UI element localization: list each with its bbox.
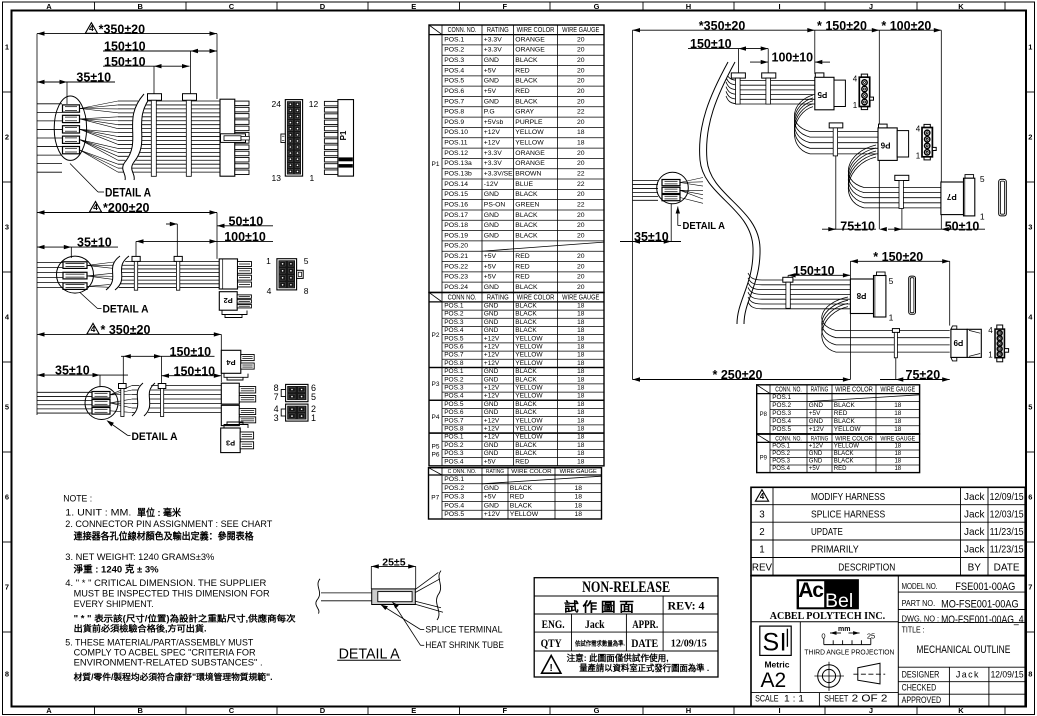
svg-text:1: 1: [988, 351, 993, 360]
svg-text:YELLOW: YELLOW: [515, 129, 544, 136]
svg-text:* 350±20: * 350±20: [101, 323, 151, 337]
svg-text:+12V: +12V: [809, 444, 823, 450]
svg-text:50±10: 50±10: [229, 214, 264, 228]
svg-text:18: 18: [894, 426, 902, 433]
svg-text:POS.4: POS.4: [772, 466, 790, 472]
svg-text:3. NET WEIGHT: 1240 GRAMS±: 3. NET WEIGHT: 1240 GRAMS±3%: [65, 552, 215, 563]
svg-text:1: 1: [853, 101, 858, 110]
svg-text:POS.2: POS.2: [444, 485, 464, 492]
svg-text:WIRE COLOR: WIRE COLOR: [511, 469, 551, 475]
svg-text:18: 18: [577, 344, 585, 351]
svg-text:+12V: +12V: [484, 417, 500, 424]
svg-text:RATING: RATING: [487, 293, 509, 302]
svg-text:3: 3: [759, 509, 765, 520]
svg-text:GND: GND: [484, 376, 499, 383]
svg-text:20: 20: [577, 78, 585, 85]
svg-text:8: 8: [1028, 670, 1032, 679]
svg-text:18: 18: [577, 303, 585, 310]
svg-text:EVERY SHIPMENT.: EVERY SHIPMENT.: [74, 599, 154, 610]
svg-text:PART NO.: PART NO.: [902, 599, 936, 608]
svg-text:POS.8: POS.8: [444, 426, 464, 433]
svg-text:POS.1: POS.1: [772, 394, 791, 401]
svg-text:WIRE COLOR: WIRE COLOR: [835, 435, 873, 442]
svg-text:POS.3: POS.3: [444, 319, 464, 326]
svg-text:20: 20: [577, 67, 585, 74]
svg-text:+5V: +5V: [484, 67, 497, 74]
svg-text:GND: GND: [484, 311, 499, 318]
svg-text:22: 22: [577, 109, 585, 116]
svg-text:P2: P2: [224, 296, 233, 305]
svg-text:Jack: Jack: [964, 508, 985, 520]
svg-text:YELLOW: YELLOW: [515, 344, 543, 351]
svg-text:20: 20: [577, 212, 585, 219]
svg-text:18: 18: [894, 402, 902, 409]
svg-text:BLACK: BLACK: [515, 57, 538, 64]
svg-text:A: A: [46, 706, 52, 715]
svg-text:1: 1: [266, 256, 271, 266]
svg-text:POS.4: POS.4: [444, 502, 464, 509]
svg-text:POS.7: POS.7: [444, 352, 464, 359]
svg-text:A2: A2: [761, 669, 787, 692]
svg-text:+12V: +12V: [484, 352, 500, 359]
svg-text:GND: GND: [809, 451, 823, 457]
svg-text:GND: GND: [484, 327, 499, 334]
svg-text:18: 18: [577, 376, 585, 383]
svg-text:GND: GND: [484, 502, 499, 509]
svg-text:CHECKED: CHECKED: [902, 683, 937, 694]
svg-text:P4: P4: [432, 414, 440, 421]
svg-text:試 作 圖 面: 試 作 圖 面: [564, 599, 634, 614]
svg-text:Jack: Jack: [964, 526, 985, 538]
svg-text:22: 22: [577, 201, 585, 208]
svg-text:P4: P4: [226, 358, 236, 367]
svg-text:POS.21: POS.21: [444, 253, 468, 260]
svg-text:Jack: Jack: [964, 491, 985, 503]
svg-text:BLACK: BLACK: [834, 451, 854, 457]
svg-text:BLACK: BLACK: [515, 409, 537, 416]
svg-text:20: 20: [577, 222, 585, 229]
svg-text:D: D: [320, 706, 326, 715]
svg-text:K: K: [958, 2, 964, 11]
svg-text:18: 18: [577, 335, 585, 342]
svg-text:GND: GND: [484, 98, 499, 105]
svg-text:P9: P9: [953, 338, 963, 347]
svg-text:POS.3: POS.3: [444, 450, 464, 457]
svg-text:依試作需求數量為準.: 依試作需求數量為準.: [575, 639, 625, 648]
svg-text:35±10: 35±10: [76, 70, 111, 84]
svg-text:75±10: 75±10: [840, 219, 875, 233]
svg-text:C: C: [229, 2, 235, 11]
svg-text:6: 6: [1028, 493, 1032, 502]
svg-text:POS.24: POS.24: [444, 284, 468, 291]
svg-text:+12V: +12V: [484, 140, 501, 147]
svg-text:1: 1: [1028, 43, 1032, 52]
svg-text:mm: mm: [838, 626, 850, 633]
svg-text:ENG.: ENG.: [542, 619, 565, 631]
svg-text:CONN. NO.: CONN. NO.: [775, 435, 802, 442]
svg-text:5: 5: [304, 256, 309, 266]
svg-text:" * " 表示該(尺寸/位置)為設計之重點尺寸,供應商每次: " * " 表示該(尺寸/位置)為設計之重點尺寸,供應商每次: [74, 612, 296, 623]
svg-text:18: 18: [574, 485, 582, 492]
svg-text:18: 18: [577, 311, 585, 318]
svg-text:2: 2: [1028, 133, 1032, 142]
svg-text:150±10: 150±10: [690, 37, 732, 51]
svg-text:CONN. NO.: CONN. NO.: [775, 386, 802, 393]
svg-text:4: 4: [916, 125, 921, 134]
svg-text:RATING: RATING: [487, 25, 509, 34]
svg-text:POS.19: POS.19: [444, 232, 468, 239]
svg-text:D: D: [320, 2, 326, 11]
svg-text:P8: P8: [856, 291, 866, 300]
svg-text:POS.5: POS.5: [444, 335, 464, 342]
svg-text:20: 20: [577, 284, 585, 291]
svg-text:* 150±20: * 150±20: [873, 250, 923, 264]
svg-text:+12V: +12V: [484, 129, 501, 136]
svg-text:P8: P8: [760, 412, 768, 418]
svg-text:POS.18: POS.18: [444, 222, 468, 229]
svg-text:RED: RED: [515, 274, 529, 281]
svg-text:ORANGE: ORANGE: [515, 160, 545, 167]
svg-text:4: 4: [760, 492, 765, 501]
svg-text:22: 22: [577, 181, 585, 188]
svg-text:20: 20: [577, 191, 585, 198]
svg-text:5: 5: [1028, 403, 1032, 412]
svg-text:POS.11: POS.11: [444, 140, 468, 147]
svg-text:P1: P1: [339, 130, 348, 140]
svg-text:GND: GND: [809, 402, 824, 409]
svg-text:GND: GND: [484, 232, 499, 239]
svg-text:POS.2: POS.2: [444, 311, 464, 318]
svg-text:12/09/15: 12/09/15: [990, 491, 1024, 503]
svg-text:GND: GND: [809, 418, 824, 425]
svg-text:K: K: [958, 706, 964, 715]
svg-text:18: 18: [894, 444, 901, 450]
svg-text:Bel: Bel: [825, 590, 853, 612]
svg-text:YELLOW: YELLOW: [515, 360, 543, 367]
svg-text:SHEET: SHEET: [824, 694, 849, 704]
svg-text:20: 20: [577, 160, 585, 167]
svg-text:POS.5: POS.5: [444, 511, 464, 518]
svg-text:RED: RED: [515, 67, 529, 74]
svg-text:POS.1: POS.1: [444, 368, 464, 375]
svg-text:4: 4: [853, 74, 858, 83]
svg-text:P1: P1: [432, 161, 440, 168]
svg-text:1 : 1: 1 : 1: [784, 694, 804, 705]
svg-text:18: 18: [577, 129, 585, 136]
svg-text:連接器各孔位線材顏色及輸出定義：參閱表格: 連接器各孔位線材顏色及輸出定義：參閱表格: [74, 530, 254, 542]
svg-text:BLACK: BLACK: [510, 502, 533, 509]
svg-text:POS.7: POS.7: [444, 417, 464, 424]
svg-text:20: 20: [577, 263, 585, 270]
svg-text:POS.16: POS.16: [444, 201, 468, 208]
svg-text:THIRD ANGLE PROJECTION: THIRD ANGLE PROJECTION: [804, 650, 894, 657]
svg-text:Ac: Ac: [798, 579, 824, 602]
svg-text:18: 18: [577, 393, 585, 400]
svg-text:+5V: +5V: [809, 410, 821, 417]
svg-text:MO-FSE001-00AG_4: MO-FSE001-00AG_4: [941, 614, 1023, 626]
svg-text:6: 6: [5, 493, 9, 502]
svg-text:GND: GND: [809, 459, 823, 465]
svg-text:18: 18: [577, 368, 585, 375]
svg-text:材質/零件/製程均必須符合康舒"環境管理物質規範".: 材質/零件/製程均必須符合康舒"環境管理物質規範".: [74, 671, 273, 682]
svg-text:+3.3V/SE: +3.3V/SE: [484, 171, 513, 178]
svg-text:I: I: [778, 2, 780, 11]
svg-text:POS.4: POS.4: [772, 418, 791, 425]
svg-text:BROWN: BROWN: [515, 171, 541, 178]
svg-text:18: 18: [894, 410, 902, 417]
svg-text:11/23/15: 11/23/15: [990, 544, 1024, 556]
svg-text:RED: RED: [515, 458, 529, 465]
svg-text:8: 8: [304, 286, 309, 296]
svg-text:18: 18: [577, 450, 585, 457]
svg-text:18: 18: [577, 319, 585, 326]
svg-text:5: 5: [980, 174, 985, 184]
svg-text:YELLOW: YELLOW: [515, 426, 543, 433]
svg-text:20: 20: [577, 150, 585, 157]
svg-text:150±10: 150±10: [104, 39, 146, 53]
svg-text:I: I: [778, 706, 780, 715]
svg-text:2 OF 2: 2 OF 2: [852, 694, 888, 705]
svg-text:1: 1: [310, 173, 315, 183]
svg-text:POS.8: POS.8: [444, 360, 464, 367]
svg-text:POS.4: POS.4: [444, 67, 464, 74]
svg-text:1. UNIT : MM.: 1. UNIT : MM.: [65, 508, 131, 519]
svg-text:量產請以資料室正式發行圖面為準 .: 量產請以資料室正式發行圖面為準 .: [579, 663, 709, 673]
svg-text:2: 2: [759, 527, 764, 538]
svg-text:+12V: +12V: [484, 426, 500, 433]
svg-text:BLUE: BLUE: [515, 181, 533, 188]
svg-text:SI: SI: [763, 629, 788, 657]
svg-text:100±10: 100±10: [224, 230, 266, 244]
svg-text:DATE: DATE: [994, 562, 1020, 573]
svg-text:3: 3: [1028, 223, 1032, 232]
svg-text:18: 18: [577, 458, 585, 465]
svg-text:+3.3V: +3.3V: [484, 160, 502, 167]
svg-text:+3.3V: +3.3V: [484, 36, 502, 43]
svg-text:WIRE COLOR: WIRE COLOR: [835, 386, 873, 393]
svg-text:CONN. NO.: CONN. NO.: [448, 25, 477, 34]
svg-text:BLACK: BLACK: [515, 376, 537, 383]
svg-text:5: 5: [311, 392, 316, 402]
svg-text:POS.2: POS.2: [772, 451, 790, 457]
svg-text:GND: GND: [484, 319, 499, 326]
svg-text:* 100±20: * 100±20: [881, 19, 931, 33]
svg-text:MODIFY HARNESS: MODIFY HARNESS: [811, 491, 885, 503]
svg-text:MO-FSE001-00AG: MO-FSE001-00AG: [941, 599, 1019, 611]
svg-text:QTY: QTY: [541, 638, 563, 650]
svg-text:DETAIL A: DETAIL A: [132, 431, 178, 443]
svg-text:WIRE COLOR: WIRE COLOR: [517, 25, 555, 34]
svg-text:20: 20: [577, 253, 585, 260]
svg-text:MECHANICAL OUTLINE: MECHANICAL OUTLINE: [916, 644, 1010, 656]
svg-text:RED: RED: [834, 410, 848, 417]
svg-text:4: 4: [89, 23, 94, 33]
svg-text:18: 18: [574, 502, 582, 509]
svg-text:BLACK: BLACK: [515, 319, 537, 326]
svg-text:POS.4: POS.4: [444, 393, 464, 400]
svg-text:POS.3: POS.3: [444, 494, 464, 501]
svg-text:YELLOW: YELLOW: [515, 393, 543, 400]
svg-text:4: 4: [988, 326, 993, 335]
svg-text:7: 7: [1028, 583, 1032, 592]
svg-text:POS.6: POS.6: [444, 344, 464, 351]
svg-text:P3: P3: [432, 381, 440, 388]
svg-text:SPLICE TERMINAL: SPLICE TERMINAL: [425, 624, 502, 635]
svg-text:J: J: [869, 2, 873, 11]
svg-text:GND: GND: [484, 212, 499, 219]
svg-text:20: 20: [577, 274, 585, 281]
svg-text:DETAIL A: DETAIL A: [683, 220, 726, 232]
svg-text:E: E: [411, 706, 416, 715]
svg-text:GND: GND: [484, 401, 499, 408]
svg-text:+5Vsb: +5Vsb: [484, 119, 504, 126]
svg-text:+12V: +12V: [484, 393, 500, 400]
svg-text:YELLOW: YELLOW: [510, 511, 539, 518]
svg-text:RATING: RATING: [811, 386, 829, 393]
svg-text:-12V: -12V: [484, 181, 499, 188]
svg-text:POS.4: POS.4: [444, 327, 464, 334]
svg-text:GND: GND: [484, 450, 499, 457]
svg-text:ACBEL POLYTECH INC.: ACBEL POLYTECH INC.: [770, 610, 886, 622]
svg-text:E: E: [411, 2, 416, 11]
svg-text:+12V: +12V: [484, 511, 501, 518]
svg-text:7: 7: [5, 583, 9, 592]
svg-text:BLACK: BLACK: [510, 485, 533, 492]
svg-text:F: F: [502, 2, 507, 11]
svg-text:B: B: [138, 706, 144, 715]
svg-text:18: 18: [577, 360, 585, 367]
svg-text:NON-RELEASE: NON-RELEASE: [582, 579, 670, 596]
svg-text:3: 3: [5, 223, 9, 232]
svg-text:GND: GND: [484, 303, 499, 310]
svg-text:150±10: 150±10: [170, 345, 212, 359]
svg-text:POS.6: POS.6: [444, 409, 464, 416]
svg-text:P5: P5: [432, 443, 440, 450]
svg-text:Jack: Jack: [964, 544, 985, 556]
svg-text:20: 20: [577, 36, 585, 43]
svg-text:2. CONNECTOR PIN ASSIGNMENT: 2. CONNECTOR PIN ASSIGNMENT : SEE CHART: [65, 519, 272, 530]
svg-text:B: B: [138, 2, 144, 11]
svg-text:P3: P3: [226, 439, 235, 448]
svg-text:+12V: +12V: [484, 385, 500, 392]
svg-text:+5V: +5V: [484, 494, 497, 501]
svg-text:+12V: +12V: [484, 344, 500, 351]
svg-text:WIRE GAUGE: WIRE GAUGE: [560, 469, 597, 475]
svg-text:18: 18: [577, 409, 585, 416]
svg-text:REV: REV: [752, 562, 773, 573]
svg-text:MODEL NO.: MODEL NO.: [902, 582, 938, 591]
svg-text:18: 18: [577, 140, 585, 147]
svg-text:REV: 4: REV: 4: [668, 601, 705, 613]
svg-text:SCALE: SCALE: [755, 694, 779, 704]
svg-text:POS.3: POS.3: [772, 459, 790, 465]
svg-text:YELLOW: YELLOW: [834, 426, 862, 433]
svg-text:RATING: RATING: [486, 469, 504, 475]
svg-text:20: 20: [577, 57, 585, 64]
svg-text:18: 18: [894, 451, 901, 457]
svg-text:出貨前必須檢驗合格後,方可出貨.: 出貨前必須檢驗合格後,方可出貨.: [74, 623, 207, 634]
svg-text:GND: GND: [484, 485, 499, 492]
svg-text:GND: GND: [484, 442, 499, 449]
svg-text:12/09/15: 12/09/15: [671, 638, 707, 650]
svg-text:18: 18: [894, 418, 902, 425]
svg-text:BLACK: BLACK: [515, 284, 538, 291]
svg-text:WIRE GAUGE: WIRE GAUGE: [880, 386, 915, 393]
svg-text:DETAIL A: DETAIL A: [103, 304, 149, 316]
svg-text:+12V: +12V: [484, 360, 500, 367]
svg-text:POS.2: POS.2: [772, 402, 791, 409]
svg-text:HEAT SHRINK TUBE: HEAT SHRINK TUBE: [425, 640, 504, 651]
svg-text:APPR.: APPR.: [632, 619, 658, 631]
svg-text:注意: 此圖面僅供試作使用,: 注意: 此圖面僅供試作使用,: [567, 653, 669, 663]
svg-text:150±10: 150±10: [104, 55, 146, 69]
svg-text:FSE001-00AG: FSE001-00AG: [955, 581, 1015, 593]
svg-text:ORANGE: ORANGE: [515, 150, 545, 157]
svg-text:DESCRIPTION: DESCRIPTION: [838, 561, 895, 573]
svg-text:BLACK: BLACK: [515, 450, 537, 457]
svg-text:1: 1: [5, 43, 9, 52]
svg-text:F: F: [502, 706, 507, 715]
svg-text:+3.3V: +3.3V: [484, 150, 502, 157]
svg-text:DWG. NO :: DWG. NO :: [902, 615, 940, 624]
svg-text:YELLOW: YELLOW: [515, 434, 543, 441]
svg-text:BLACK: BLACK: [515, 222, 538, 229]
svg-text:POS.8: POS.8: [444, 109, 464, 116]
svg-text:P7: P7: [946, 192, 956, 201]
svg-text:POS.1: POS.1: [444, 36, 464, 43]
svg-text:35±10: 35±10: [634, 230, 669, 244]
svg-text:YELLOW: YELLOW: [834, 444, 859, 450]
svg-text:DATE: DATE: [631, 638, 658, 650]
svg-text:20: 20: [577, 47, 585, 54]
svg-text:POS.1: POS.1: [772, 444, 790, 450]
svg-text:+12V: +12V: [809, 426, 825, 433]
svg-text:GND: GND: [484, 191, 499, 198]
svg-text:J: J: [869, 706, 873, 715]
svg-text:P9: P9: [760, 456, 768, 462]
svg-text:POS.12: POS.12: [444, 150, 468, 157]
svg-text:RED: RED: [515, 253, 529, 260]
svg-text:12/03/15: 12/03/15: [990, 508, 1024, 520]
svg-text:POS.6: POS.6: [444, 88, 464, 95]
svg-text:POS.3: POS.3: [772, 410, 791, 417]
svg-text:100±10: 100±10: [772, 51, 814, 65]
svg-text:POS.22: POS.22: [444, 263, 468, 270]
svg-text:BLACK: BLACK: [515, 303, 537, 310]
svg-text:BLACK: BLACK: [515, 401, 537, 408]
svg-text:POS.2: POS.2: [444, 47, 464, 54]
svg-text:4: 4: [91, 324, 96, 334]
svg-text:BLACK: BLACK: [515, 232, 538, 239]
svg-text:POS.5: POS.5: [444, 401, 464, 408]
svg-text:GND: GND: [484, 409, 499, 416]
svg-text:MUST BE INSPECTED THIS DIM: MUST BE INSPECTED THIS DIMENSION FOR: [74, 589, 270, 600]
svg-text:35±10: 35±10: [55, 364, 90, 378]
svg-text:YELLOW: YELLOW: [515, 352, 543, 359]
svg-text:TITLE :: TITLE :: [902, 625, 925, 634]
svg-text:75±20: 75±20: [906, 368, 941, 382]
svg-text:1: 1: [311, 413, 316, 423]
svg-text:4: 4: [267, 286, 272, 296]
svg-text:ENVIRONMENT-RELATED SUBSTANCE: ENVIRONMENT-RELATED SUBSTANCES" .: [74, 658, 263, 669]
svg-text:POS.1: POS.1: [444, 476, 464, 483]
svg-text:+3.3V: +3.3V: [484, 47, 502, 54]
svg-text:+5V: +5V: [484, 274, 497, 281]
svg-text:PRIMARILY: PRIMARILY: [811, 544, 859, 556]
svg-text:1: 1: [980, 212, 985, 222]
svg-text:150±10: 150±10: [793, 264, 835, 278]
svg-text:YELLOW: YELLOW: [515, 417, 543, 424]
